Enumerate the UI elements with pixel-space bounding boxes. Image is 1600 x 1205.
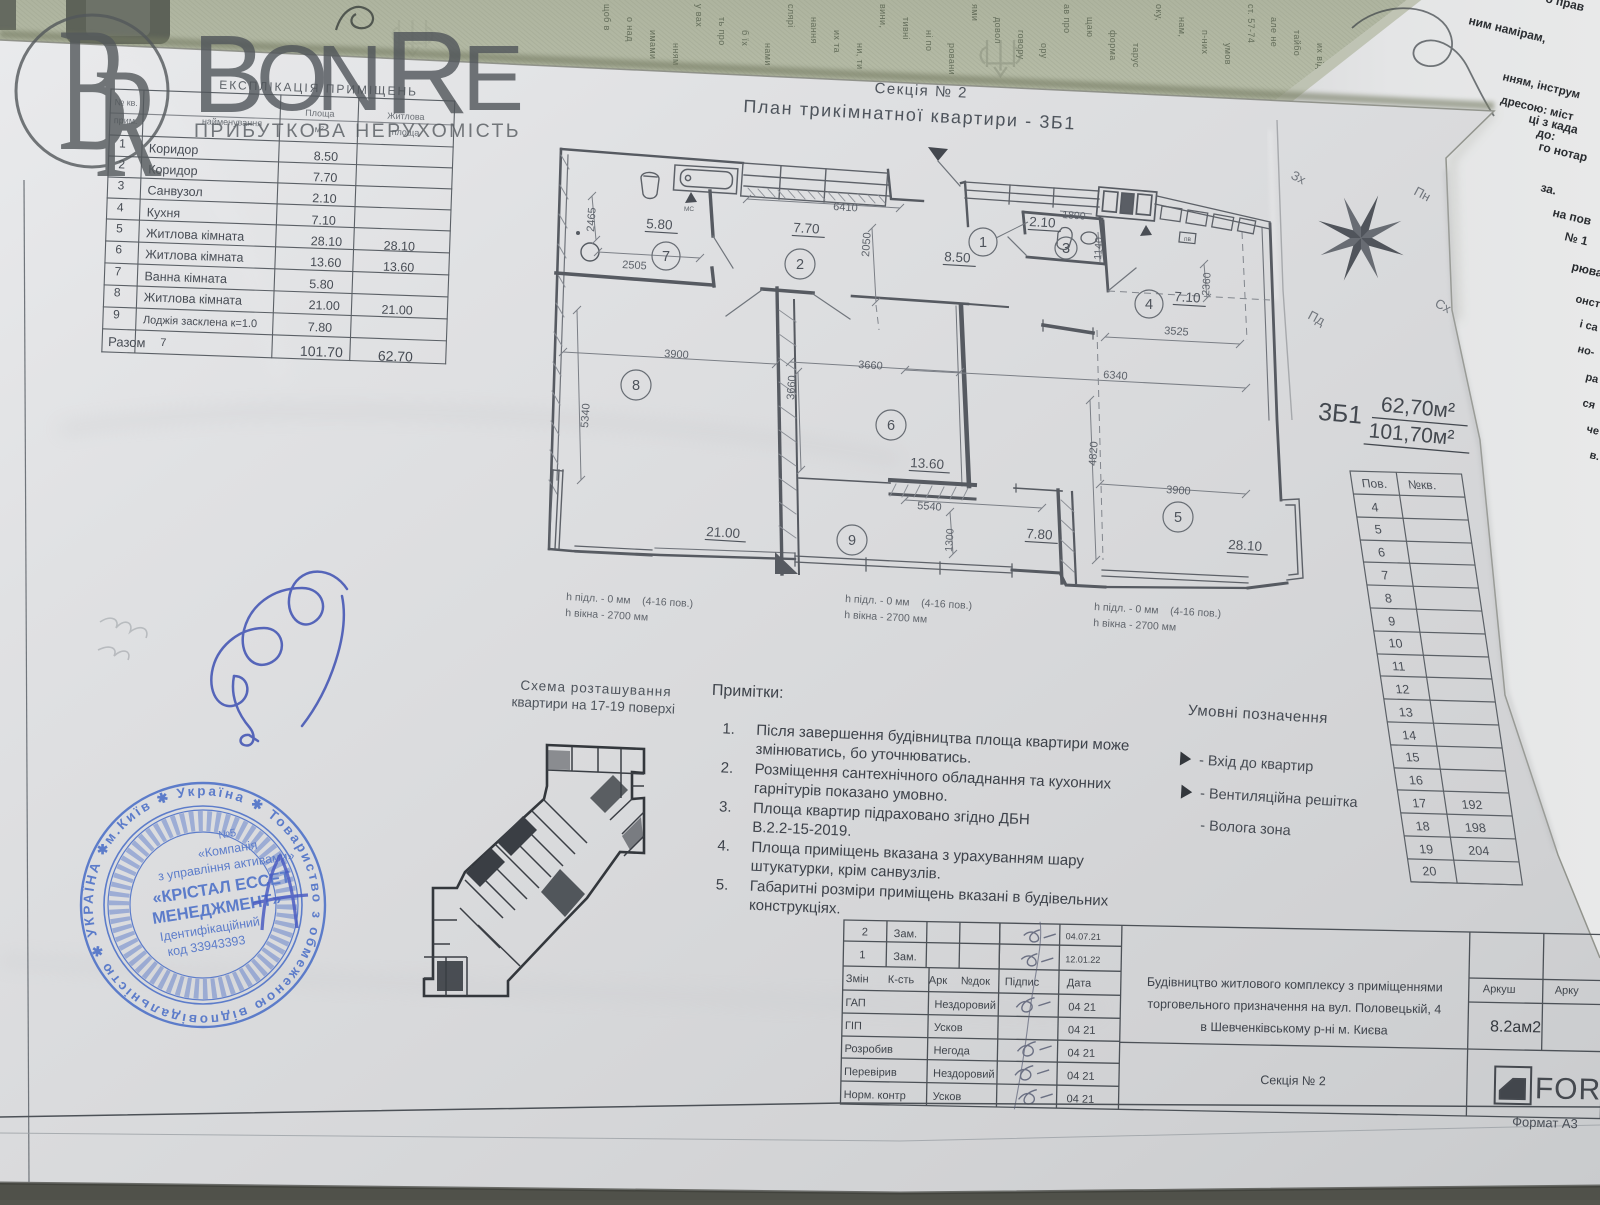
svg-text:2465: 2465 (585, 207, 599, 232)
svg-text:3525: 3525 (1164, 325, 1189, 339)
svg-text:2050: 2050 (860, 232, 874, 257)
svg-text:Разом: Разом (108, 334, 146, 350)
svg-text:Нездоровий: Нездоровий (934, 999, 996, 1012)
svg-text:Змін: Змін (846, 973, 869, 985)
svg-text:10: 10 (1388, 636, 1404, 650)
svg-text:Формат А3: Формат А3 (1512, 1114, 1578, 1131)
svg-text:3900: 3900 (664, 348, 689, 361)
svg-text:п-них: п-них (1200, 30, 1210, 54)
svg-text:19: 19 (1418, 842, 1434, 856)
svg-text:9: 9 (848, 533, 856, 549)
svg-text:15: 15 (1404, 750, 1420, 764)
svg-text:1140: 1140 (1092, 237, 1106, 261)
svg-text:Ванна кімната: Ванна кімната (144, 269, 227, 286)
svg-text:6340: 6340 (1103, 369, 1128, 383)
svg-text:№кв.: №кв. (1407, 478, 1437, 493)
svg-text:ть про: ть про (717, 17, 727, 46)
svg-text:7: 7 (662, 249, 670, 265)
svg-text:щаю: щаю (1085, 17, 1095, 37)
svg-text:6: 6 (887, 418, 895, 434)
svg-text:3.: 3. (719, 798, 732, 816)
svg-text:ГІП: ГІП (845, 1020, 862, 1032)
svg-text:4820: 4820 (1087, 441, 1101, 466)
svg-text:3: 3 (1062, 241, 1070, 257)
svg-text:Усков: Усков (934, 1022, 963, 1035)
svg-text:04 21: 04 21 (1067, 1070, 1095, 1083)
svg-text:Зам.: Зам. (893, 951, 917, 963)
svg-text:3660: 3660 (858, 359, 883, 372)
svg-text:13.60: 13.60 (383, 260, 415, 275)
svg-text:17: 17 (1411, 796, 1427, 810)
svg-text:28.10: 28.10 (383, 239, 415, 254)
svg-text:5340: 5340 (579, 403, 593, 428)
svg-text:№док: №док (961, 975, 991, 988)
svg-text:9: 9 (113, 307, 120, 321)
svg-text:ями: ями (970, 4, 980, 21)
svg-text:8.50: 8.50 (314, 149, 339, 164)
svg-text:E: E (462, 26, 524, 130)
svg-text:МС: МС (684, 206, 694, 213)
svg-text:Нездоровий: Нездоровий (933, 1068, 995, 1081)
svg-text:4.: 4. (717, 837, 730, 855)
svg-text:Перевірив: Перевірив (844, 1066, 897, 1079)
svg-text:5: 5 (116, 221, 123, 235)
svg-text:B: B (192, 13, 265, 136)
svg-text:оку,: оку, (1154, 4, 1164, 21)
svg-text:имами: имами (648, 30, 658, 59)
svg-text:Зам.: Зам. (894, 928, 918, 940)
svg-text:Аркуш: Аркуш (1483, 983, 1516, 996)
svg-text:14: 14 (1401, 728, 1417, 742)
svg-text:04.07.21: 04.07.21 (1066, 931, 1101, 942)
svg-text:13.60: 13.60 (910, 455, 945, 472)
svg-text:нам,: нам, (1177, 17, 1187, 37)
svg-text:в.: в. (1588, 449, 1600, 463)
svg-text:21.00: 21.00 (706, 524, 741, 541)
svg-text:ПРИБУТКОВА НЕРУХОМІСТЬ: ПРИБУТКОВА НЕРУХОМІСТЬ (194, 120, 521, 142)
svg-text:7.70: 7.70 (793, 220, 820, 237)
svg-text:11: 11 (1391, 659, 1406, 673)
svg-text:12.01.22: 12.01.22 (1065, 954, 1100, 965)
svg-text:5: 5 (1174, 510, 1182, 526)
svg-text:13: 13 (1398, 705, 1414, 719)
svg-text:их та: их та (832, 30, 842, 53)
svg-text:28.10: 28.10 (1228, 537, 1263, 554)
svg-text:форма: форма (1108, 30, 1118, 61)
svg-text:3Б1: 3Б1 (1317, 398, 1363, 430)
svg-text:8.50: 8.50 (944, 249, 971, 266)
svg-text:7.80: 7.80 (1026, 526, 1053, 543)
svg-text:7: 7 (114, 264, 121, 278)
svg-text:о над: о над (625, 17, 635, 42)
svg-text:20: 20 (1421, 864, 1437, 878)
svg-text:18: 18 (1415, 819, 1431, 833)
svg-text:але не: але не (1269, 17, 1279, 47)
svg-text:Розробив: Розробив (844, 1043, 893, 1056)
svg-text:04 21: 04 21 (1068, 1001, 1096, 1014)
svg-text:2: 2 (862, 926, 868, 938)
svg-text:ав про: ав про (1062, 4, 1072, 34)
svg-text:5540: 5540 (917, 500, 942, 514)
svg-text:FOR: FOR (1535, 1072, 1600, 1106)
svg-text:8: 8 (632, 378, 640, 394)
svg-text:16: 16 (1408, 773, 1424, 787)
svg-text:13.60: 13.60 (310, 255, 342, 270)
svg-text:тарус: тарус (1131, 43, 1141, 68)
svg-text:довол: довол (993, 17, 1003, 44)
svg-text:21.00: 21.00 (308, 298, 340, 313)
svg-text:слярі: слярі (786, 4, 796, 28)
svg-text:1300: 1300 (943, 528, 957, 552)
svg-text:Секція № 2: Секція № 2 (1260, 1073, 1326, 1088)
svg-text:ні по: ні по (924, 30, 934, 51)
svg-text:04 21: 04 21 (1068, 1024, 1096, 1037)
svg-text:умов: умов (1223, 43, 1233, 65)
svg-text:ровани: ровани (947, 43, 957, 75)
svg-text:28.10: 28.10 (311, 234, 343, 249)
svg-text:04 21: 04 21 (1067, 1047, 1095, 1060)
svg-text:б їх: б їх (740, 30, 750, 46)
svg-text:нами: нами (763, 43, 773, 66)
svg-text:Арку: Арку (1555, 985, 1580, 997)
svg-text:2360: 2360 (1200, 272, 1214, 296)
svg-text:Усков: Усков (933, 1091, 962, 1104)
svg-text:6410: 6410 (833, 201, 858, 214)
svg-text:5.80: 5.80 (309, 277, 334, 292)
svg-text:тивні: тивні (901, 17, 911, 40)
svg-text:62.70: 62.70 (378, 347, 414, 364)
svg-text:Арк: Арк (929, 975, 948, 987)
svg-text:Примітки:: Примітки: (712, 682, 784, 702)
svg-text:7: 7 (160, 337, 167, 349)
svg-text:4: 4 (1145, 297, 1153, 313)
svg-text:21.00: 21.00 (381, 303, 413, 318)
svg-text:Негода: Негода (933, 1045, 970, 1058)
svg-text:ст. 57-74: ст. 57-74 (1246, 4, 1256, 43)
svg-text:5.80: 5.80 (646, 216, 673, 233)
svg-text:К-сть: К-сть (888, 974, 915, 987)
svg-text:Дата: Дата (1067, 977, 1092, 989)
svg-text:198: 198 (1464, 821, 1487, 835)
svg-text:ору: ору (1039, 43, 1049, 59)
svg-text:1.: 1. (722, 720, 735, 738)
svg-text:2.10: 2.10 (1029, 214, 1056, 231)
svg-text:7.10: 7.10 (311, 213, 336, 228)
svg-text:ни, ти: ни, ти (855, 43, 865, 70)
svg-text:ГАП: ГАП (845, 997, 866, 1009)
svg-text:тайбо: тайбо (1292, 30, 1302, 56)
svg-text:у вах: у вах (694, 4, 704, 27)
svg-text:8.2ам2: 8.2ам2 (1490, 1018, 1541, 1036)
svg-text:2.: 2. (720, 759, 733, 777)
svg-text:Норм. контр: Норм. контр (844, 1089, 906, 1102)
svg-text:N: N (316, 26, 383, 130)
svg-text:8: 8 (114, 285, 121, 299)
svg-text:12: 12 (1394, 682, 1410, 696)
svg-text:6: 6 (115, 242, 122, 256)
svg-text:1800: 1800 (1062, 209, 1086, 223)
svg-text:7.80: 7.80 (308, 320, 333, 335)
svg-text:3900: 3900 (1166, 484, 1191, 498)
svg-text:3660: 3660 (785, 375, 799, 400)
svg-text:нання: нання (809, 17, 819, 44)
svg-text:щоб в: щоб в (602, 4, 612, 31)
svg-text:Пов.: Пов. (1361, 476, 1388, 491)
svg-text:пв: пв (1184, 236, 1192, 243)
svg-text:2: 2 (796, 257, 804, 273)
svg-text:R: R (94, 35, 162, 210)
svg-text:вини,: вини, (878, 4, 888, 28)
svg-text:2.10: 2.10 (312, 191, 337, 206)
svg-text:1: 1 (979, 235, 987, 251)
svg-text:204: 204 (1467, 844, 1490, 858)
svg-text:7.70: 7.70 (313, 170, 338, 185)
svg-text:1: 1 (859, 949, 865, 961)
svg-text:5.: 5. (715, 876, 728, 894)
svg-text:101.70: 101.70 (300, 343, 344, 360)
svg-text:192: 192 (1461, 798, 1484, 812)
svg-text:7.10: 7.10 (1174, 289, 1201, 306)
svg-text:2505: 2505 (622, 259, 647, 272)
